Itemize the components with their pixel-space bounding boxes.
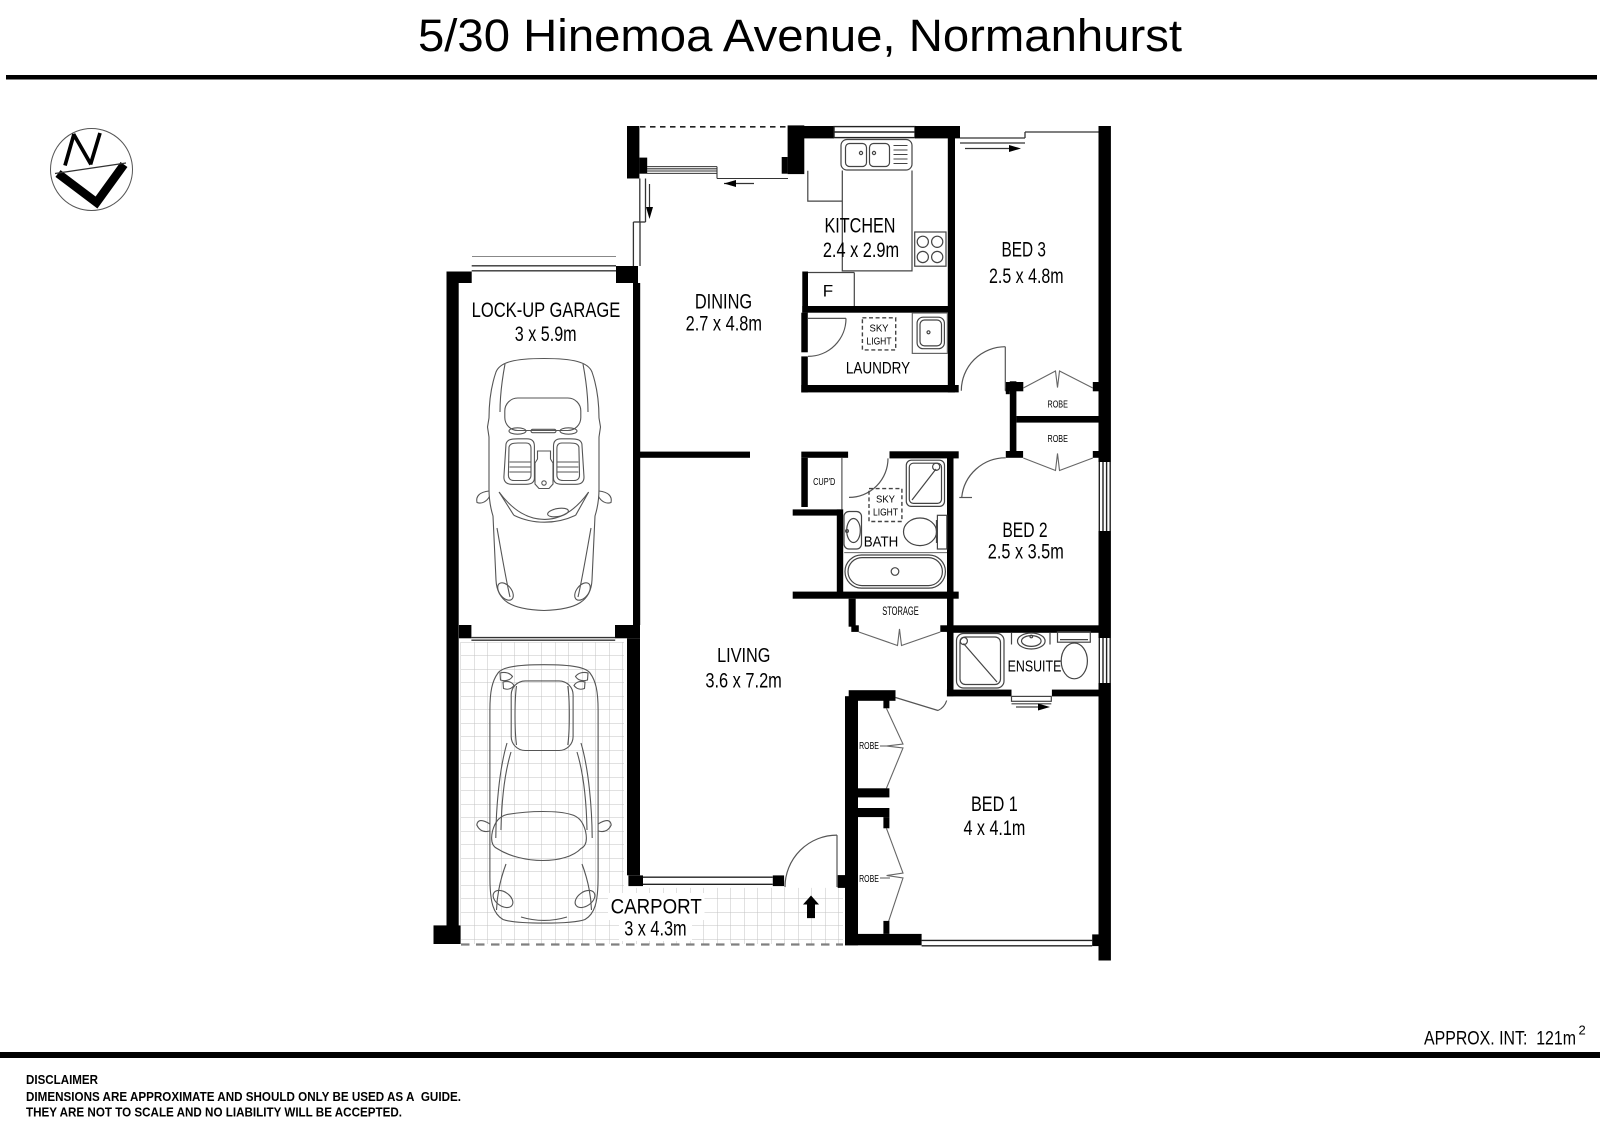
svg-text:2: 2 (1579, 1023, 1586, 1038)
svg-text:3.6 x 7.2m: 3.6 x 7.2m (705, 670, 782, 693)
svg-text:BED 2: BED 2 (1002, 519, 1047, 542)
svg-text:4 x 4.1m: 4 x 4.1m (963, 817, 1025, 840)
svg-text:BED 1: BED 1 (971, 793, 1018, 816)
svg-text:CUP'D: CUP'D (813, 476, 835, 488)
svg-text:DISCLAIMER: DISCLAIMER (26, 1072, 99, 1087)
svg-text:SKY: SKY (876, 494, 895, 506)
svg-text:ROBE: ROBE (1048, 434, 1068, 445)
svg-text:THEY ARE NOT TO SCALE AND NO L: THEY ARE NOT TO SCALE AND NO LIABILITY W… (26, 1105, 402, 1120)
svg-text:2.7 x 4.8m: 2.7 x 4.8m (686, 313, 762, 336)
svg-text:LIGHT: LIGHT (873, 507, 898, 519)
svg-text:3 x 5.9m: 3 x 5.9m (515, 323, 577, 346)
svg-text:LOCK-UP GARAGE: LOCK-UP GARAGE (472, 299, 621, 322)
svg-text:LIVING: LIVING (717, 644, 770, 667)
svg-text:2.5 x 4.8m: 2.5 x 4.8m (989, 265, 1064, 288)
svg-text:ROBE: ROBE (1048, 400, 1068, 411)
svg-text:2.5 x 3.5m: 2.5 x 3.5m (988, 541, 1064, 564)
svg-text:LIGHT: LIGHT (867, 336, 892, 348)
svg-text:3 x 4.3m: 3 x 4.3m (624, 918, 686, 941)
svg-text:CARPORT: CARPORT (611, 896, 702, 919)
svg-text:DIMENSIONS ARE APPROXIMATE AND: DIMENSIONS ARE APPROXIMATE AND SHOULD ON… (26, 1089, 461, 1104)
svg-text:BATH: BATH (864, 534, 899, 550)
svg-text:BED 3: BED 3 (1002, 238, 1046, 261)
svg-text:KITCHEN: KITCHEN (825, 215, 896, 238)
svg-text:2.4 x 2.9m: 2.4 x 2.9m (823, 239, 899, 262)
svg-text:5/30 Hinemoa Avenue, Normanhur: 5/30 Hinemoa Avenue, Normanhurst (418, 10, 1183, 61)
svg-text:ROBE: ROBE (859, 874, 879, 885)
svg-text:LAUNDRY: LAUNDRY (846, 360, 910, 378)
svg-text:APPROX. INT: 121m: APPROX. INT: 121m (1424, 1029, 1576, 1050)
svg-text:ROBE: ROBE (859, 741, 879, 752)
svg-text:ENSUITE: ENSUITE (1008, 659, 1062, 676)
svg-text:STORAGE: STORAGE (882, 606, 919, 618)
svg-text:DINING: DINING (695, 291, 752, 314)
svg-text:F: F (823, 282, 833, 301)
svg-text:SKY: SKY (870, 323, 889, 335)
